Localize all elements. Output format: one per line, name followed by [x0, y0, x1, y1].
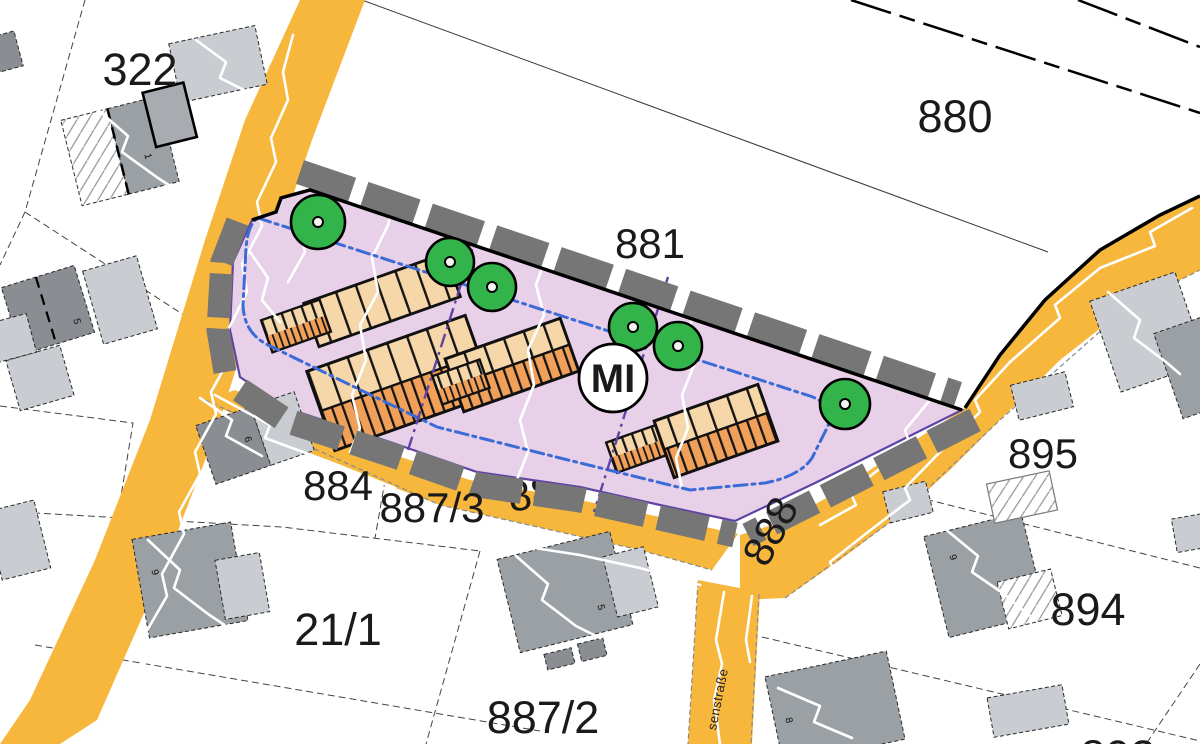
- parcel-label-322: 322: [102, 44, 177, 95]
- mi-zone-label: MI: [591, 357, 635, 401]
- building: [0, 31, 23, 72]
- building: [987, 685, 1069, 738]
- building: [1171, 511, 1200, 552]
- parcel-label-887-3: 887/3: [379, 484, 484, 531]
- parcel-label-887-2: 887/2: [487, 692, 600, 743]
- parcel-label-895: 895: [1008, 430, 1078, 477]
- building: [59, 83, 206, 206]
- tree-icon: [820, 379, 870, 429]
- parcel-label-894: 894: [1050, 584, 1125, 635]
- tree-icon: [468, 263, 516, 311]
- building: [0, 500, 51, 580]
- tree-icon: [426, 238, 474, 286]
- building-open-structure: [987, 471, 1058, 523]
- parcel-label-880: 880: [917, 91, 992, 142]
- zoning-map: 885: [0, 0, 1200, 744]
- boundary-dashed-topright: [851, 0, 1200, 113]
- parcel-label-21-1: 21/1: [294, 604, 382, 655]
- parcel-label-884: 884: [303, 462, 373, 509]
- map-canvas: 885: [0, 0, 1200, 744]
- mi-zone-badge: MI: [579, 344, 647, 412]
- tree-icon: [291, 195, 345, 249]
- parcel-label-893-clipped: 893: [1080, 731, 1155, 744]
- tree-icon: [654, 322, 702, 370]
- parcel-label-881: 881: [615, 220, 685, 267]
